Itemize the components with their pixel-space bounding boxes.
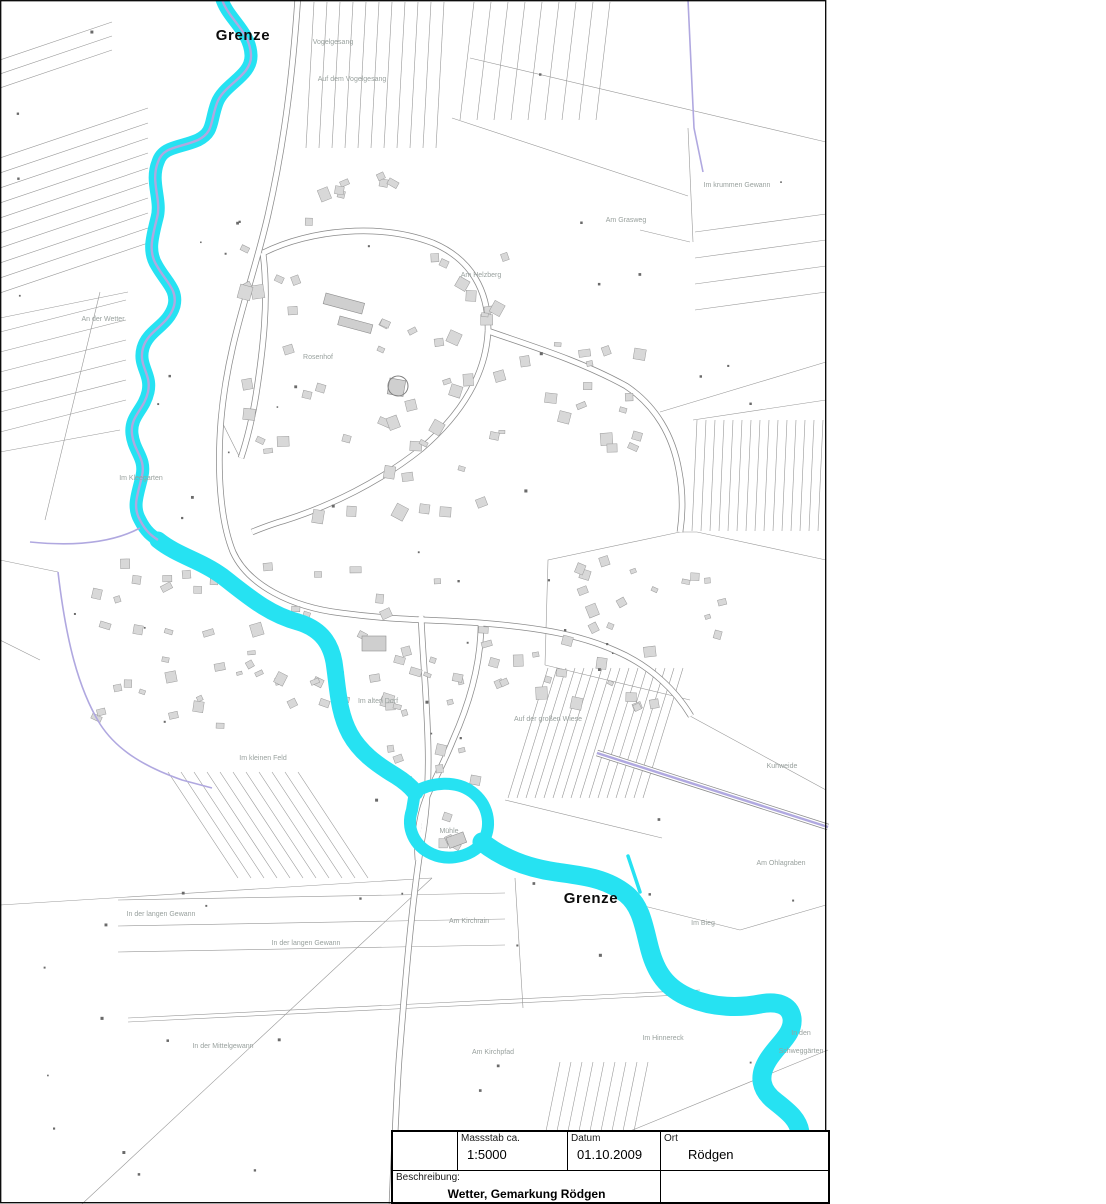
scale-cell: Massstab ca. 1:5000 bbox=[457, 1132, 567, 1170]
description-cell: Beschreibung: Wetter, Gemarkung Rödgen bbox=[393, 1170, 660, 1202]
field-label: In der langen Gewann bbox=[272, 940, 341, 947]
field-label: Im kleinen Feld bbox=[239, 755, 287, 762]
field-label: Rosenhof bbox=[303, 354, 333, 361]
grenze-label-south: Grenze bbox=[564, 890, 618, 907]
field-label: Im Kleegarten bbox=[119, 475, 163, 482]
title-block-empty-cell-2 bbox=[660, 1170, 828, 1202]
field-label: Im alten Dorf bbox=[358, 698, 398, 705]
place-label: Ort bbox=[664, 1133, 825, 1144]
field-label: Am Kirchpfad bbox=[472, 1049, 514, 1056]
field-label: In der Mittelgewann bbox=[192, 1043, 253, 1050]
date-label: Datum bbox=[571, 1133, 657, 1144]
field-label: In der langen Gewann bbox=[127, 911, 196, 918]
page-background bbox=[0, 0, 1106, 1204]
grenze-label-north: Grenze bbox=[216, 27, 270, 44]
date-cell: Datum 01.10.2009 bbox=[567, 1132, 660, 1170]
date-value: 01.10.2009 bbox=[571, 1147, 657, 1162]
field-label: Mühle bbox=[439, 828, 458, 835]
field-label: Kuhweide bbox=[767, 763, 798, 770]
field-label: Im Hinnereck bbox=[642, 1035, 684, 1042]
place-value: Rödgen bbox=[664, 1147, 825, 1162]
field-label: Schweggärten bbox=[779, 1048, 824, 1055]
title-block: Massstab ca. 1:5000 Datum 01.10.2009 Ort… bbox=[391, 1130, 830, 1204]
place-cell: Ort Rödgen bbox=[660, 1132, 828, 1170]
field-label: Auf dem Vogelgesang bbox=[318, 76, 387, 83]
title-block-empty-cell bbox=[393, 1132, 457, 1170]
map-page: Vogelgesang Auf dem Vogelgesang Im krumm… bbox=[0, 0, 1106, 1204]
field-label: Am Kirchrain bbox=[449, 918, 489, 925]
field-label: An der Wetter bbox=[81, 316, 125, 323]
field-label: In den bbox=[791, 1030, 811, 1037]
scale-value: 1:5000 bbox=[461, 1147, 564, 1162]
scale-label: Massstab ca. bbox=[461, 1133, 564, 1144]
description-value: Wetter, Gemarkung Rödgen bbox=[396, 1187, 657, 1201]
field-label: Im Bieg bbox=[691, 920, 715, 927]
field-label: Im krummen Gewann bbox=[704, 182, 771, 189]
field-label: Vogelgesang bbox=[313, 39, 354, 46]
field-label: Auf der großen Wiese bbox=[514, 716, 582, 723]
map-canvas: Vogelgesang Auf dem Vogelgesang Im krumm… bbox=[0, 0, 1106, 1204]
field-label: Am Ohlagraben bbox=[756, 860, 805, 867]
field-label: Am Helzberg bbox=[461, 272, 502, 279]
description-label: Beschreibung: bbox=[396, 1172, 657, 1183]
field-label: Am Grasweg bbox=[606, 217, 647, 224]
